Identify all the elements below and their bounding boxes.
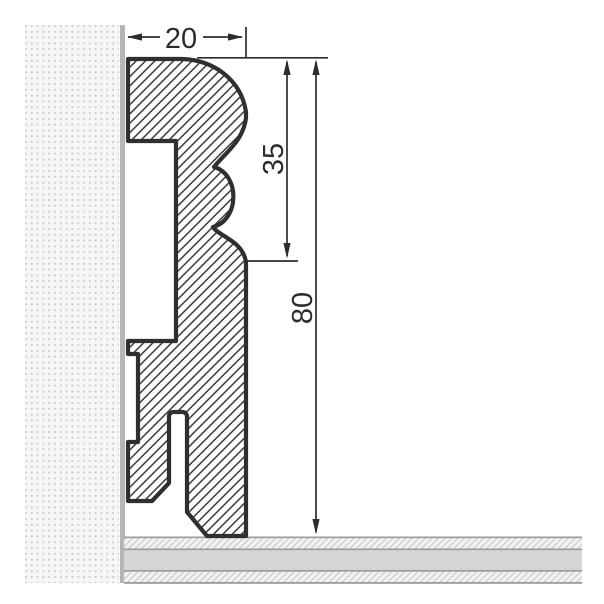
floor-top-line [124, 537, 582, 539]
drawing-canvas: 20 35 80 [0, 0, 604, 604]
arrow-down-icon [312, 519, 319, 535]
wall-plaster-stipple [25, 25, 119, 583]
arrow-right-icon [228, 33, 243, 40]
floor-lower-hatch-layer [124, 572, 582, 582]
arrow-up-icon [312, 60, 319, 76]
skirting-profile-section [128, 59, 246, 536]
floor-bottom-line [124, 582, 582, 584]
wall-surface-line [120, 25, 125, 583]
arrow-left-icon [127, 33, 142, 40]
dim-upper-label: 35 [258, 143, 290, 175]
floor-divider-line [124, 570, 582, 572]
floor-upper-hatch-layer [124, 538, 582, 548]
dim-height-label: 80 [287, 292, 319, 324]
dimension-total-height: 80 [287, 60, 320, 535]
arrow-down-icon [283, 243, 290, 259]
dim-width-label: 20 [165, 23, 197, 55]
dimension-upper-height: 35 [246, 60, 298, 262]
dimension-width: 20 [127, 23, 246, 57]
floor-core-layer [124, 550, 582, 570]
wall-section [25, 25, 125, 583]
floor-section [124, 537, 582, 584]
floor-divider-line [124, 549, 582, 551]
technical-drawing: 20 35 80 [0, 0, 604, 604]
arrow-up-icon [283, 60, 290, 76]
